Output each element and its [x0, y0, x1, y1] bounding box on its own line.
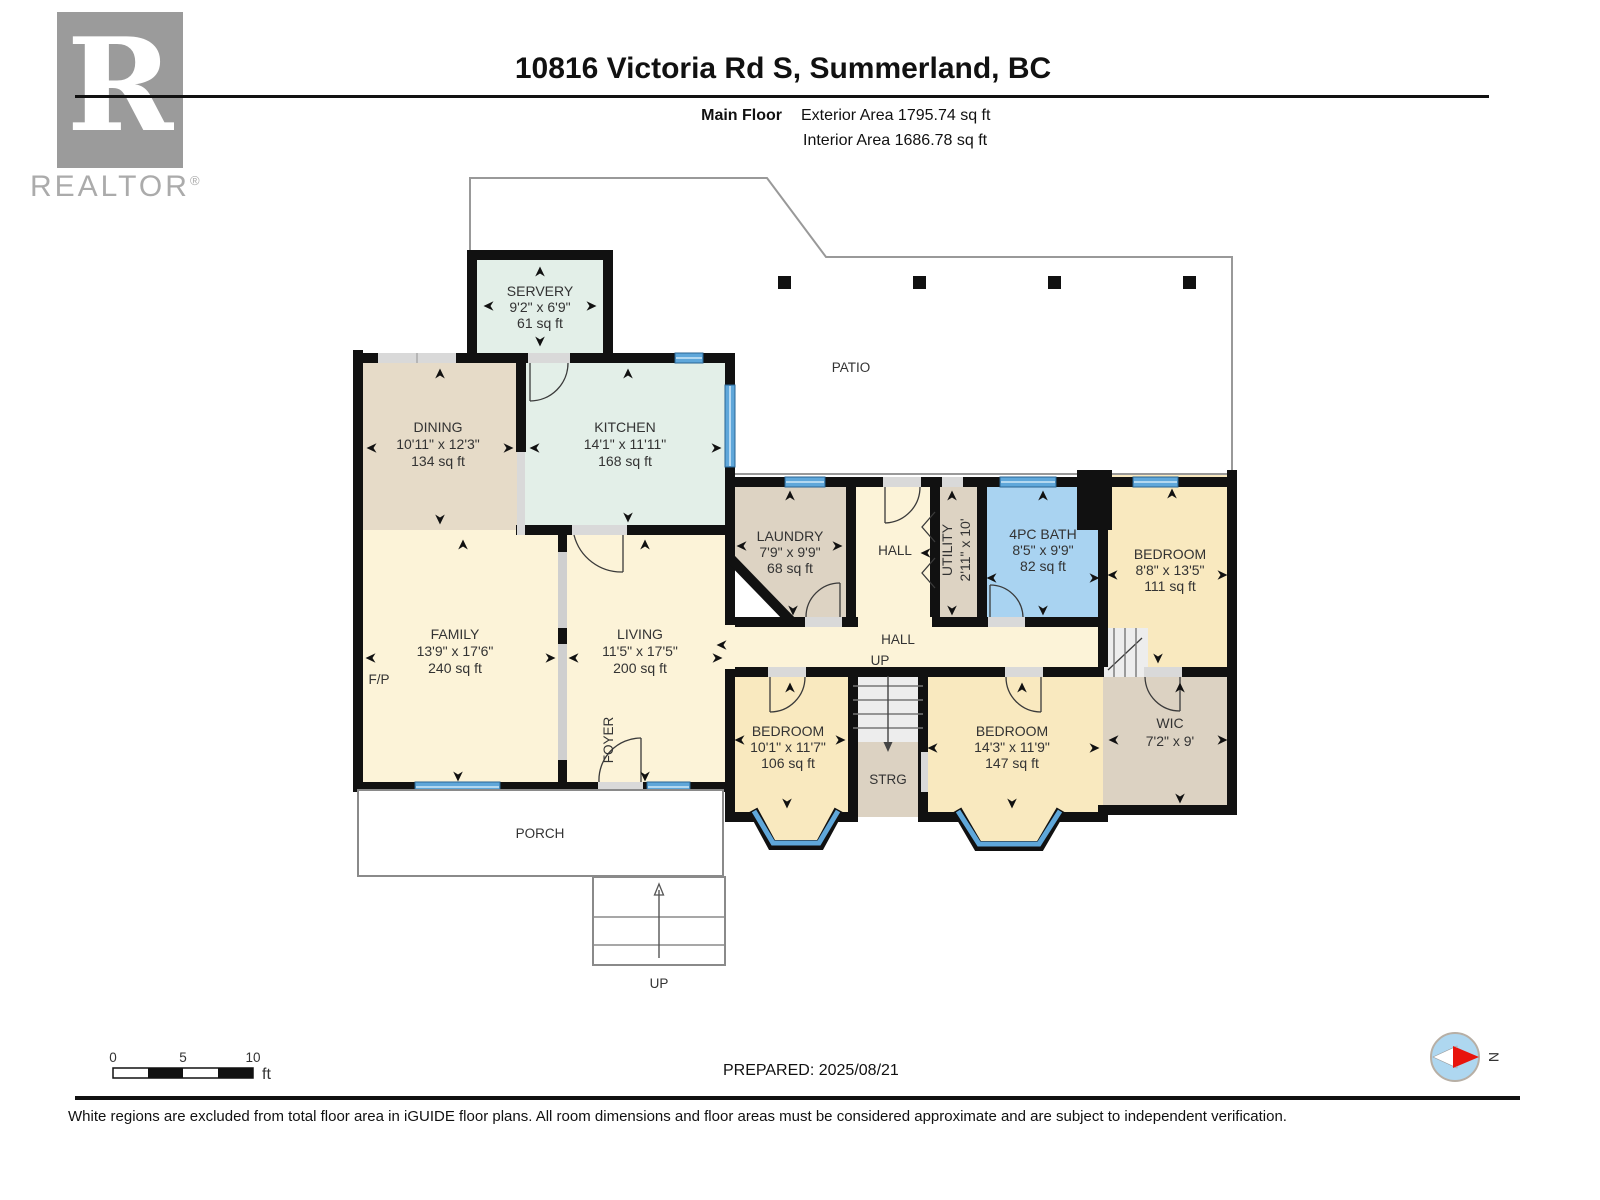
laundry-window [785, 477, 825, 487]
dining-label: DINING [414, 419, 463, 435]
svg-text:10: 10 [245, 1050, 260, 1065]
svg-text:168 sq ft: 168 sq ft [598, 453, 652, 469]
bath-label: 4PC BATH [1009, 526, 1076, 542]
disclaimer-text: White regions are excluded from total fl… [68, 1108, 1287, 1125]
kitchen-window-right [725, 385, 735, 467]
family-label: FAMILY [431, 626, 480, 642]
room-hall-main [730, 622, 1103, 672]
foyer-label: FOYER [601, 717, 616, 764]
svg-text:2'11" x 10': 2'11" x 10' [957, 519, 973, 582]
hall-upper-label: HALL [878, 543, 912, 558]
front-steps [593, 877, 725, 965]
fireplace-label: F/P [368, 672, 389, 687]
svg-text:0: 0 [109, 1050, 117, 1065]
svg-text:13'9" x 17'6": 13'9" x 17'6" [417, 643, 494, 659]
svg-text:8'8" x 13'5": 8'8" x 13'5" [1136, 562, 1205, 578]
laundry-label: LAUNDRY [757, 528, 824, 544]
svg-text:14'3" x 11'9": 14'3" x 11'9" [974, 739, 1050, 755]
svg-text:10'11" x 12'3": 10'11" x 12'3" [396, 436, 480, 452]
floor-plan-page: R REALTOR® 10816 Victoria Rd S, Summerla… [0, 0, 1600, 1200]
svg-text:82 sq ft: 82 sq ft [1020, 558, 1066, 574]
patio-label: PATIO [832, 360, 871, 375]
svg-text:240 sq ft: 240 sq ft [428, 660, 482, 676]
up-steps-label: UP [650, 976, 669, 991]
svg-text:9'2" x 6'9": 9'2" x 6'9" [509, 299, 570, 315]
hall-main-label: HALL [881, 632, 915, 647]
compass-n-label: N [1486, 1052, 1502, 1062]
living-label: LIVING [617, 626, 663, 642]
svg-text:111 sq ft: 111 sq ft [1144, 578, 1196, 594]
svg-text:11'5" x 17'5": 11'5" x 17'5" [602, 643, 678, 659]
bedroom-ne-window [1133, 477, 1178, 487]
utility-label: UTILITY [939, 523, 955, 576]
svg-text:7'2" x 9': 7'2" x 9' [1146, 733, 1194, 749]
svg-text:134 sq ft: 134 sq ft [411, 453, 465, 469]
scale-bar: 0 5 10 ft [109, 1050, 271, 1083]
svg-text:8'5" x 9'9": 8'5" x 9'9" [1012, 542, 1073, 558]
kitchen-label: KITCHEN [594, 419, 655, 435]
porch-label: PORCH [516, 826, 565, 841]
bath-window [1000, 477, 1056, 487]
scale-unit-label: ft [262, 1066, 271, 1083]
servery-label: SERVERY [507, 283, 574, 299]
svg-text:106 sq ft: 106 sq ft [761, 755, 815, 771]
compass-icon: N [1431, 1033, 1502, 1081]
chimney [1077, 470, 1112, 530]
footer-divider [75, 1096, 1520, 1100]
svg-text:7'9" x 9'9": 7'9" x 9'9" [759, 544, 820, 560]
floor-plan-canvas: SERVERY 9'2" x 6'9" 61 sq ft DINING 10'1… [0, 0, 1600, 1200]
svg-text:14'1" x 11'11": 14'1" x 11'11" [584, 436, 667, 452]
bedroom-sw-label: BEDROOM [752, 723, 824, 739]
svg-text:10'1" x 11'7": 10'1" x 11'7" [750, 739, 826, 755]
svg-text:147 sq ft: 147 sq ft [985, 755, 1039, 771]
svg-text:200 sq ft: 200 sq ft [613, 660, 667, 676]
wic-label: WIC [1156, 715, 1183, 731]
storage-label: STRG [869, 772, 907, 787]
prepared-date: PREPARED: 2025/08/21 [723, 1062, 899, 1080]
kitchen-window-top [675, 353, 703, 363]
svg-text:68 sq ft: 68 sq ft [767, 560, 813, 576]
svg-text:61 sq ft: 61 sq ft [517, 315, 563, 331]
bedroom-ne-label: BEDROOM [1134, 546, 1206, 562]
up-hall-label: UP [871, 653, 890, 668]
bedroom-se-label: BEDROOM [976, 723, 1048, 739]
svg-text:5: 5 [179, 1050, 187, 1065]
